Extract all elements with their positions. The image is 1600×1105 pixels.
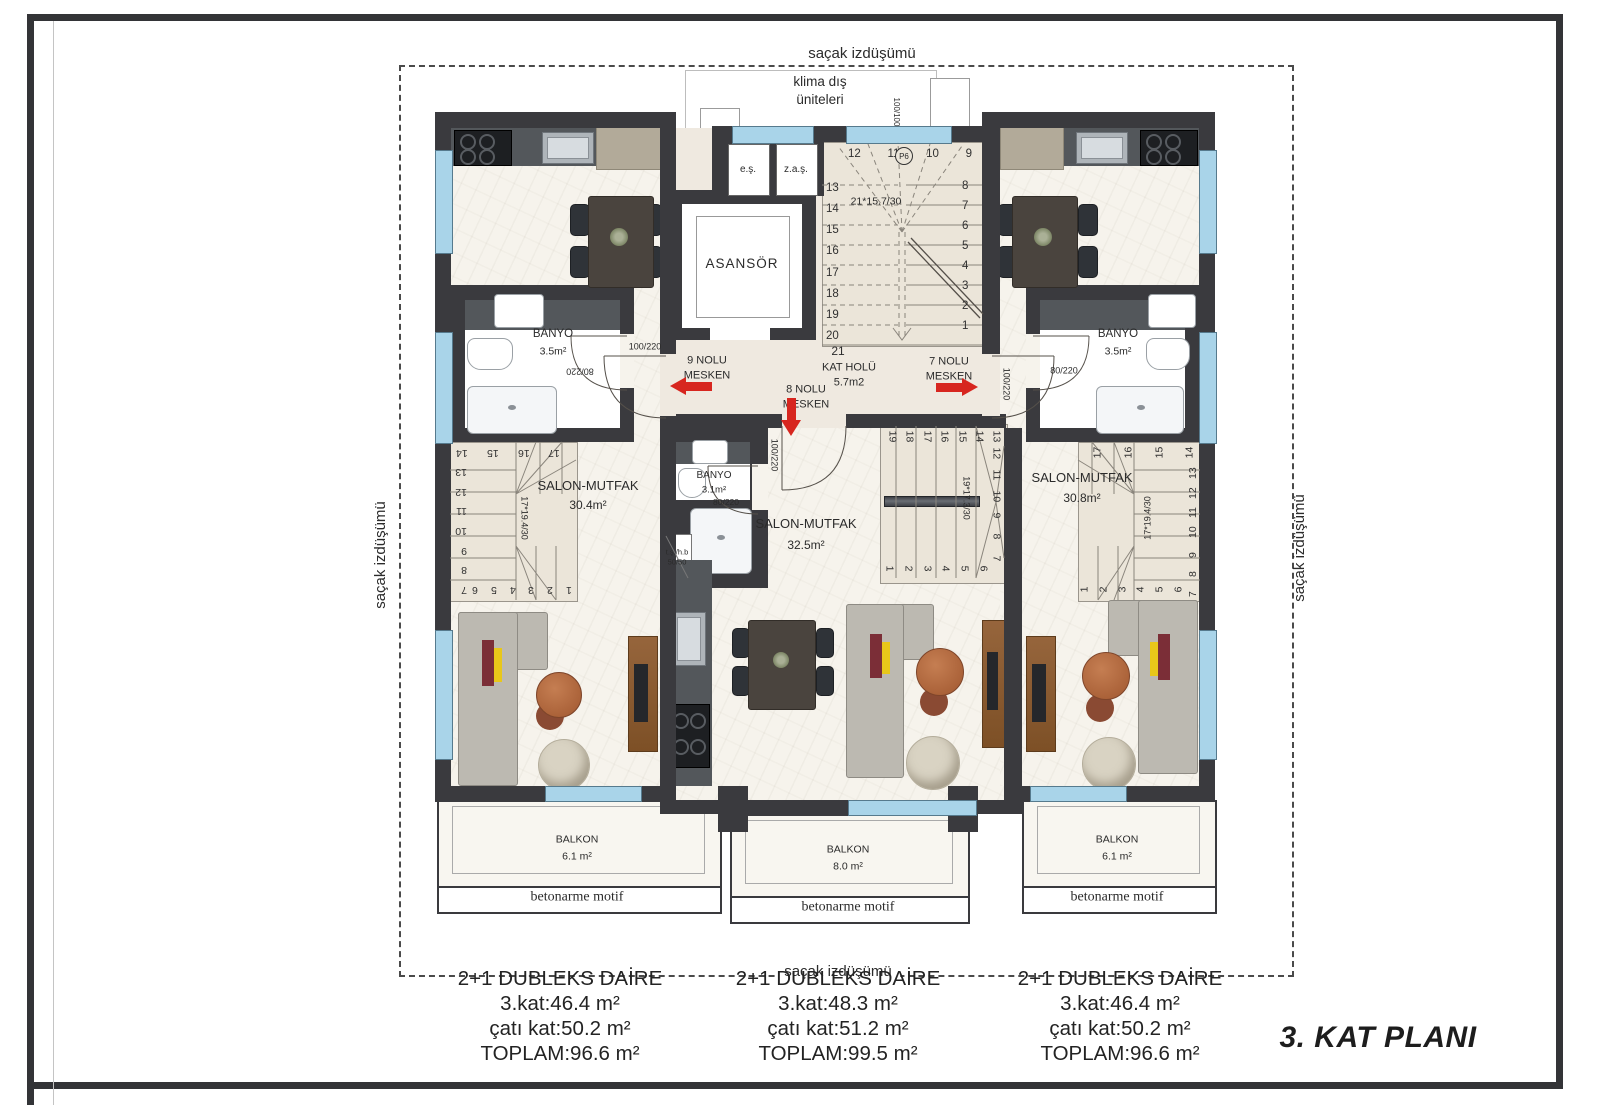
stair-left-numbers-side: 13121110987	[453, 466, 467, 596]
stair-right-numbers-top: 17161514	[1092, 446, 1196, 459]
shower-right	[1096, 386, 1184, 434]
stair-right-numbers-side: 13121110987	[1186, 466, 1200, 596]
stair-step-number: 10	[453, 525, 467, 537]
bath-middle-label: BANYO	[696, 470, 731, 482]
bathroom-left-sink	[494, 294, 544, 328]
window	[1199, 150, 1217, 254]
unit7-door-gap	[982, 354, 1000, 416]
sofa-middle	[846, 604, 904, 778]
stair-right-numbers-bottom: 123456	[1082, 583, 1182, 596]
chair	[1078, 204, 1098, 236]
stair-step-number: 4	[962, 260, 980, 272]
stair-step-number: 7	[962, 200, 980, 212]
wall-balcony-pier-left	[718, 786, 748, 832]
wall-apartment7-lobby	[982, 112, 1000, 354]
stair-step-number: 8	[1187, 563, 1199, 577]
stair-step-number: 1	[566, 583, 572, 596]
balcony-door-glass-middle	[848, 800, 977, 816]
stair-step-number: 2	[1097, 587, 1110, 593]
floor-plan-canvas: saçak izdüşümü saçak izdüşümü saçak izdü…	[0, 0, 1600, 1105]
unit7-label-line1: 7 NOLU	[929, 355, 969, 368]
stair-step-number: 18	[826, 288, 844, 300]
coffee-table-right	[1082, 652, 1130, 700]
salon-left-label: SALON-MUTFAK	[537, 478, 638, 494]
apartment9-stair-floor	[450, 442, 578, 602]
stair-step-number: 11	[991, 469, 1003, 482]
unit7-arrow-head	[962, 378, 978, 396]
stair-step-number: 14	[972, 431, 985, 443]
stair-step-number: 14	[456, 446, 468, 459]
salon-middle-label: SALON-MUTFAK	[755, 516, 856, 532]
stair-step-number: 11	[1187, 504, 1199, 518]
bath-right-area: 3.5m²	[1105, 346, 1132, 359]
wall-party-right	[1004, 428, 1022, 814]
core-stair-last-step: 21	[831, 344, 844, 358]
stove-right	[1140, 130, 1198, 166]
motif-left-label: betonarme motif	[531, 890, 624, 907]
stair-step-number: 15	[487, 446, 499, 459]
stair-step-number: 18	[903, 431, 916, 443]
balcony-right-area: 6.1 m²	[1102, 851, 1132, 864]
unit9-arrow	[686, 382, 712, 391]
cushion-yellow	[1150, 642, 1158, 676]
cushion-red	[482, 640, 494, 686]
stair-step-number: 1	[882, 566, 895, 572]
unit-info-middle: 2+1 DUBLEKS DAİRE 3.kat:48.3 m² çatı kat…	[736, 966, 941, 1066]
stair-middle-numbers-side: 121110987	[990, 448, 1003, 568]
wall-segment	[975, 800, 1004, 814]
window	[732, 126, 814, 144]
wall-segment	[1022, 786, 1030, 800]
wall-party-left	[660, 428, 676, 814]
chair	[570, 204, 590, 236]
stair-step-number: 4	[939, 566, 952, 572]
frame-bottom	[27, 1082, 1563, 1089]
wall-segment	[676, 800, 848, 814]
stair-step-number: 10	[1187, 524, 1199, 538]
balcony-door-glass-right	[1030, 786, 1127, 802]
stair-step-number: 13	[1187, 465, 1199, 479]
stair-right-dim: 17*19.4/30	[1143, 496, 1154, 540]
wall-segment	[950, 126, 982, 142]
hall-area-label: 5.7m2	[834, 376, 865, 389]
motif-middle-label: betonarme motif	[802, 900, 895, 917]
frame-right	[1556, 14, 1563, 1087]
pouf-left	[538, 739, 590, 791]
core-stair-dim: 21*15.7/30	[851, 196, 902, 209]
apartment7-stair-floor	[1078, 442, 1202, 602]
stair-step-number: 16	[1122, 447, 1135, 459]
unit-info-right: 2+1 DUBLEKS DAİRE 3.kat:46.4 m² çatı kat…	[1018, 966, 1223, 1066]
stair-step-number: 5	[1154, 587, 1167, 593]
unit9-label-line2: MESKEN	[684, 369, 730, 382]
stair-step-number: 9	[966, 148, 972, 162]
toilet-left	[467, 338, 513, 370]
balcony-middle-label: BALKON	[827, 844, 870, 857]
stair-step-number: 20	[826, 330, 844, 342]
closet-es-label: e.ş.	[740, 164, 756, 176]
stair-step-number: 9	[991, 512, 1003, 525]
elevator-label: ASANSÖR	[705, 256, 778, 272]
eave-label-left: saçak izdüşümü	[372, 501, 390, 609]
stair-left-numbers-top: 14151617	[456, 446, 560, 459]
stair-window-dim: 100/100	[891, 98, 901, 127]
unit7-arrow	[936, 383, 962, 392]
stair-step-number: 8	[453, 564, 467, 576]
stair-step-number: 17	[548, 446, 560, 459]
stair-step-number: 15	[826, 224, 844, 236]
bath-left-door-dim: 80/220	[566, 366, 594, 377]
sofa-left	[458, 612, 518, 786]
stair-step-number: 19	[885, 431, 898, 443]
stair-step-number: 9	[453, 545, 467, 557]
window	[435, 332, 453, 444]
chair	[816, 628, 834, 658]
stair-step-number: 16	[518, 446, 530, 459]
stair-step-number: 4	[1135, 587, 1148, 593]
hall-label: KAT HOLÜ	[822, 361, 876, 374]
balcony-middle-area: 8.0 m²	[833, 861, 863, 874]
unit9-label-line1: 9 NOLU	[687, 354, 727, 367]
shaft-label-line1: t.ş./h.b	[666, 548, 689, 557]
stair-step-number: 3	[528, 583, 534, 596]
stair-step-number: 2	[547, 583, 553, 596]
stair-step-number: 14	[1184, 447, 1197, 459]
klima-unit-2	[930, 78, 970, 130]
stair-middle-numbers-bottom: 123456	[886, 562, 986, 575]
closet-zas-label: z.a.ş.	[784, 164, 808, 176]
stair-step-number: 1	[962, 320, 980, 332]
stair-left-numbers-bottom: 654321	[472, 583, 572, 596]
stair-step-number: 11	[453, 505, 467, 517]
bathroom-right-door-gap	[1026, 334, 1040, 388]
bathroom-right-sink	[1148, 294, 1196, 328]
stair-middle-dim: 19*17.3/30	[961, 476, 972, 520]
info-line: 3.kat:46.4 m²	[1018, 991, 1223, 1016]
stair-step-number: 16	[826, 245, 844, 257]
info-line: çatı kat:50.2 m²	[458, 1016, 663, 1041]
core-stair-floor	[822, 142, 984, 347]
frame-top	[27, 14, 1563, 21]
stair-step-number: 5	[958, 566, 971, 572]
unit8-arrow-head	[781, 420, 801, 436]
chair	[816, 666, 834, 696]
info-line: çatı kat:50.2 m²	[1018, 1016, 1223, 1041]
wall-lobby-bottom-east	[846, 414, 1006, 428]
info-line: 3.kat:46.4 m²	[458, 991, 663, 1016]
plant-decor	[1034, 228, 1052, 246]
tv-left	[634, 664, 648, 722]
cushion-red	[1158, 634, 1170, 680]
stair-step-number: 2	[901, 566, 914, 572]
unit7-door-dim: 100/220	[1001, 368, 1012, 401]
unit8-label-line1: 8 NOLU	[786, 383, 826, 396]
window	[1199, 630, 1217, 760]
bathroom-middle-door-gap	[752, 464, 768, 510]
stair-left-dim: 17*19.4/30	[519, 496, 530, 540]
bath-left-area: 3.5m²	[540, 346, 567, 359]
balcony-right-label: BALKON	[1096, 834, 1139, 847]
window	[435, 150, 453, 254]
plant-decor	[610, 228, 628, 246]
stair-step-number: 12	[453, 486, 467, 498]
tv-right	[1032, 664, 1046, 722]
wall-top-right	[982, 112, 1215, 128]
balcony-left-area: 6.1 m²	[562, 851, 592, 864]
kitchen-cabinet-left	[596, 126, 662, 170]
balcony-door-glass-left	[545, 786, 642, 802]
bathroom-middle-sink	[692, 440, 728, 464]
window	[1199, 332, 1217, 444]
bath-left-label: BANYO	[533, 328, 573, 342]
eave-label-top: saçak izdüşümü	[802, 45, 922, 63]
unit9-arrow-head	[670, 377, 686, 395]
stair-step-number: 3	[920, 566, 933, 572]
column-marker: P6	[895, 147, 913, 165]
unit9-door-dim: 100/220	[629, 342, 662, 353]
cushion-red	[870, 634, 882, 678]
klima-label-line2: üniteleri	[796, 92, 843, 108]
plant-decor	[773, 652, 789, 668]
salon-right-area: 30.8m²	[1063, 491, 1100, 505]
kitchen-sink-right	[1076, 132, 1128, 164]
cushion-yellow	[494, 648, 502, 682]
stove-left	[454, 130, 512, 166]
stair-step-number: 6	[472, 583, 478, 596]
chair	[570, 246, 590, 278]
info-line: çatı kat:51.2 m²	[736, 1016, 941, 1041]
wall-segment	[640, 786, 676, 800]
pouf-middle	[906, 736, 960, 790]
wall-segment	[712, 126, 732, 142]
info-line: 2+1 DUBLEKS DAİRE	[1018, 966, 1223, 991]
window	[435, 630, 453, 760]
bath-right-label: BANYO	[1098, 328, 1138, 342]
stair-step-number: 10	[926, 148, 939, 162]
bath-right-door-dim: 80/220	[1050, 366, 1078, 377]
info-line: 2+1 DUBLEKS DAİRE	[736, 966, 941, 991]
stair-step-number: 17	[1091, 447, 1104, 459]
cushion-yellow	[882, 642, 890, 674]
stair-middle-numbers-top: 19181716151413	[886, 430, 1002, 443]
klima-label-line1: klima dış	[793, 74, 846, 90]
stair-step-number: 13	[826, 182, 844, 194]
wall-segment	[435, 786, 545, 800]
stair-step-number: 3	[1116, 587, 1129, 593]
stair-step-number: 15	[955, 431, 968, 443]
balcony-left-label: BALKON	[556, 834, 599, 847]
info-line: TOPLAM:96.6 m²	[458, 1041, 663, 1066]
frame-inner-line	[53, 21, 54, 1105]
shower-left	[467, 386, 557, 434]
stair-step-number: 8	[962, 180, 980, 192]
chair	[1078, 246, 1098, 278]
stair-step-number: 17	[826, 267, 844, 279]
stair-step-number: 7	[1187, 583, 1199, 597]
stair-step-number: 13	[453, 466, 467, 478]
tv-middle	[987, 652, 998, 710]
kitchen-sink-middle	[672, 612, 706, 666]
stair-step-number: 10	[991, 491, 1003, 504]
toilet-right	[1146, 338, 1190, 370]
wall-top-left	[435, 112, 676, 128]
stair-step-number: 14	[826, 203, 844, 215]
info-line: 2+1 DUBLEKS DAİRE	[458, 966, 663, 991]
plan-title: 3. KAT PLANI	[1279, 1020, 1476, 1056]
elevator-door-gap	[710, 328, 770, 340]
shaft-label-line2: 50/50	[668, 558, 687, 567]
stair-step-number: 7	[453, 584, 467, 596]
stair-step-number: 2	[962, 300, 980, 312]
stair-step-number: 9	[1187, 544, 1199, 558]
kitchen-sink-left	[542, 132, 594, 164]
pouf-right	[1082, 737, 1136, 791]
info-line: TOPLAM:99.5 m²	[736, 1041, 941, 1066]
stairwell-window	[846, 126, 952, 144]
bath-middle-door-dim: 80/220	[713, 497, 739, 507]
stair-step-number: 5	[491, 583, 497, 596]
motif-right-label: betonarme motif	[1071, 890, 1164, 907]
unit-info-left: 2+1 DUBLEKS DAİRE 3.kat:46.4 m² çatı kat…	[458, 966, 663, 1066]
stair-step-number: 17	[920, 431, 933, 443]
stair-step-number: 19	[826, 309, 844, 321]
unit8-door-dim: 100/220	[769, 439, 780, 472]
eave-label-right: saçak izdüşümü	[1291, 494, 1309, 602]
info-line: 3.kat:48.3 m²	[736, 991, 941, 1016]
stair-step-number: 16	[937, 431, 950, 443]
stair-step-number: 5	[962, 240, 980, 252]
coffee-table-left	[536, 672, 582, 718]
bath-middle-area: 3.1m²	[702, 484, 726, 495]
stair-step-number: 6	[962, 220, 980, 232]
stair-step-number: 12	[848, 148, 861, 162]
stair-step-number: 12	[991, 448, 1003, 461]
stair-step-number: 1	[1078, 587, 1091, 593]
stair-step-number: 4	[510, 583, 516, 596]
stair-step-number: 8	[991, 534, 1003, 547]
core-stair-numbers-left: 1314151617181920	[826, 182, 844, 342]
stair-step-number: 12	[1187, 485, 1199, 499]
wall-segment	[1125, 786, 1215, 800]
core-stair-numbers-right: 87654321	[962, 180, 980, 332]
sofa-right	[1138, 600, 1198, 774]
stair-step-number: 7	[991, 555, 1003, 568]
wall-lobby-bottom-west	[660, 414, 782, 428]
unit8-arrow	[787, 398, 796, 420]
coffee-table-middle	[916, 648, 964, 696]
info-line: TOPLAM:96.6 m²	[1018, 1041, 1223, 1066]
kitchen-cabinet-right	[1000, 126, 1064, 170]
stair-step-number: 3	[962, 280, 980, 292]
stair-step-number: 6	[1173, 587, 1186, 593]
frame-left	[27, 14, 34, 1105]
stair-step-number: 13	[990, 431, 1003, 443]
salon-right-label: SALON-MUTFAK	[1031, 470, 1132, 486]
stair-step-number: 6	[977, 566, 990, 572]
salon-middle-area: 32.5m²	[787, 538, 824, 552]
stair-step-number: 15	[1153, 447, 1166, 459]
salon-left-area: 30.4m²	[569, 498, 606, 512]
